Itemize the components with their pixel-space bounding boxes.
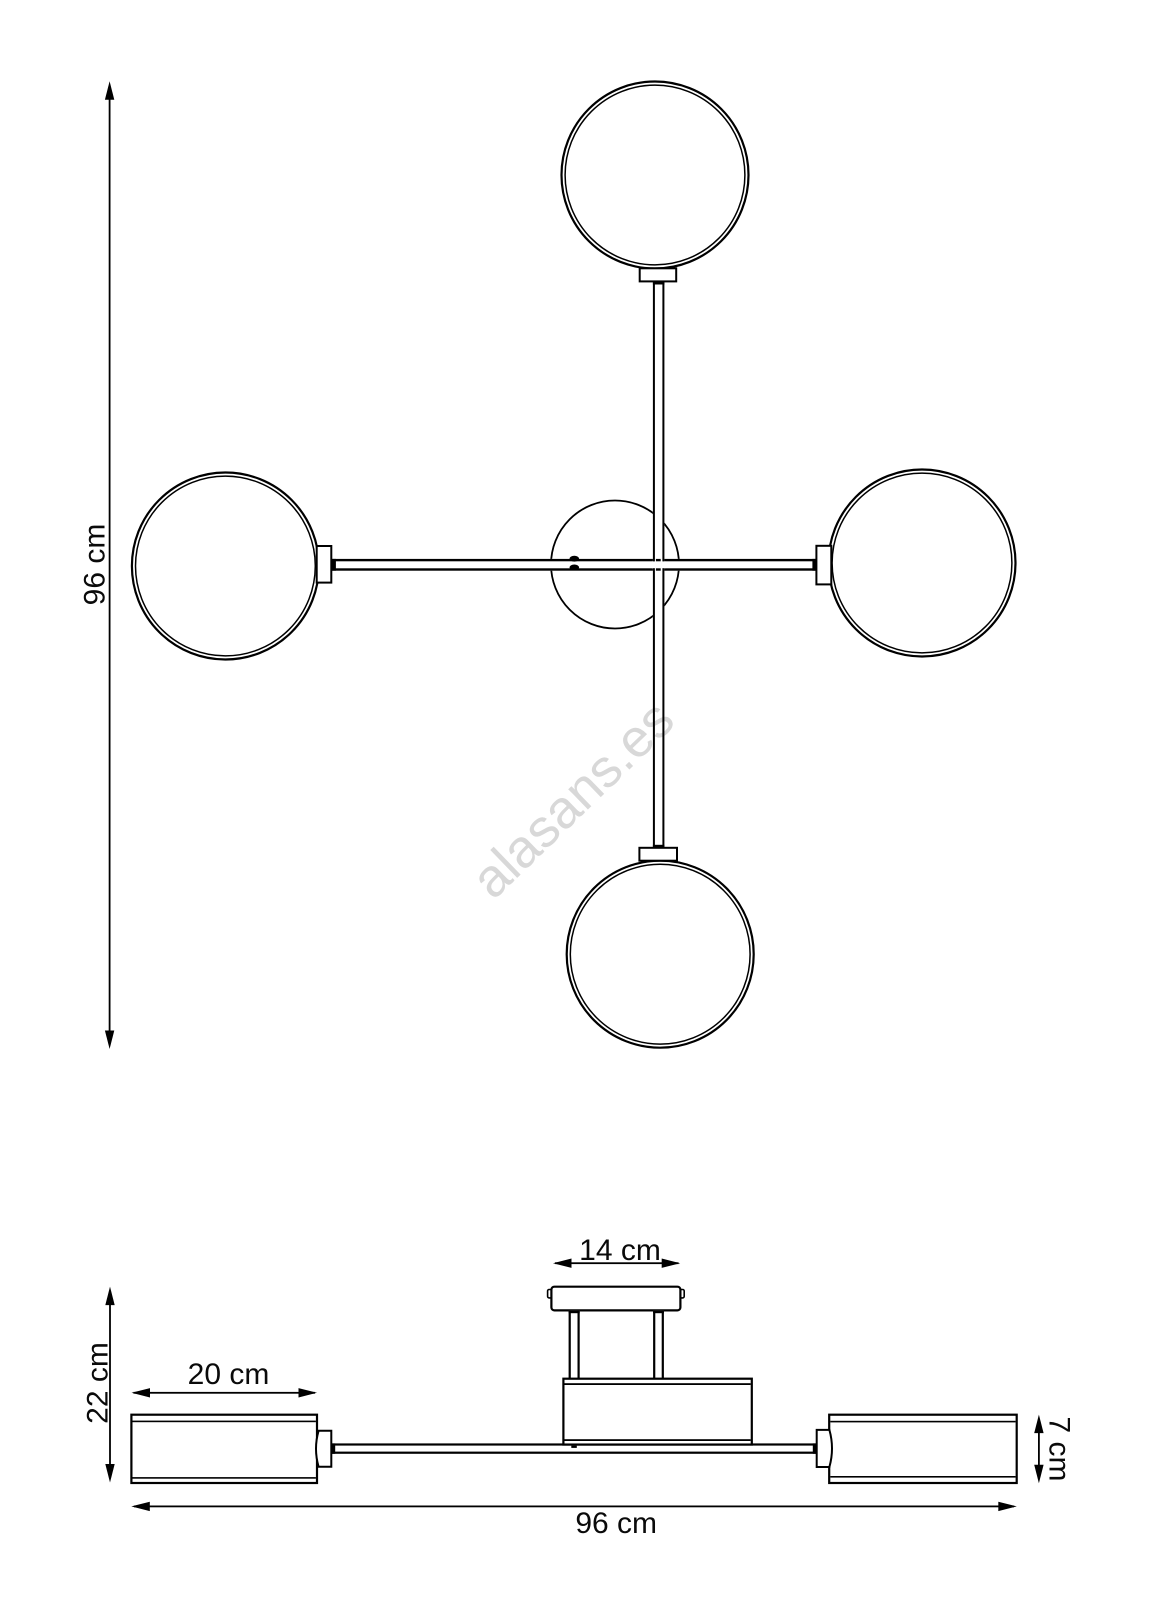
svg-text:22 cm: 22 cm [81,1342,114,1424]
svg-text:14 cm: 14 cm [579,1234,661,1267]
svg-text:96 cm: 96 cm [78,524,111,606]
svg-text:96 cm: 96 cm [575,1507,657,1540]
svg-text:20 cm: 20 cm [188,1358,270,1391]
svg-text:7 cm: 7 cm [1043,1416,1076,1481]
